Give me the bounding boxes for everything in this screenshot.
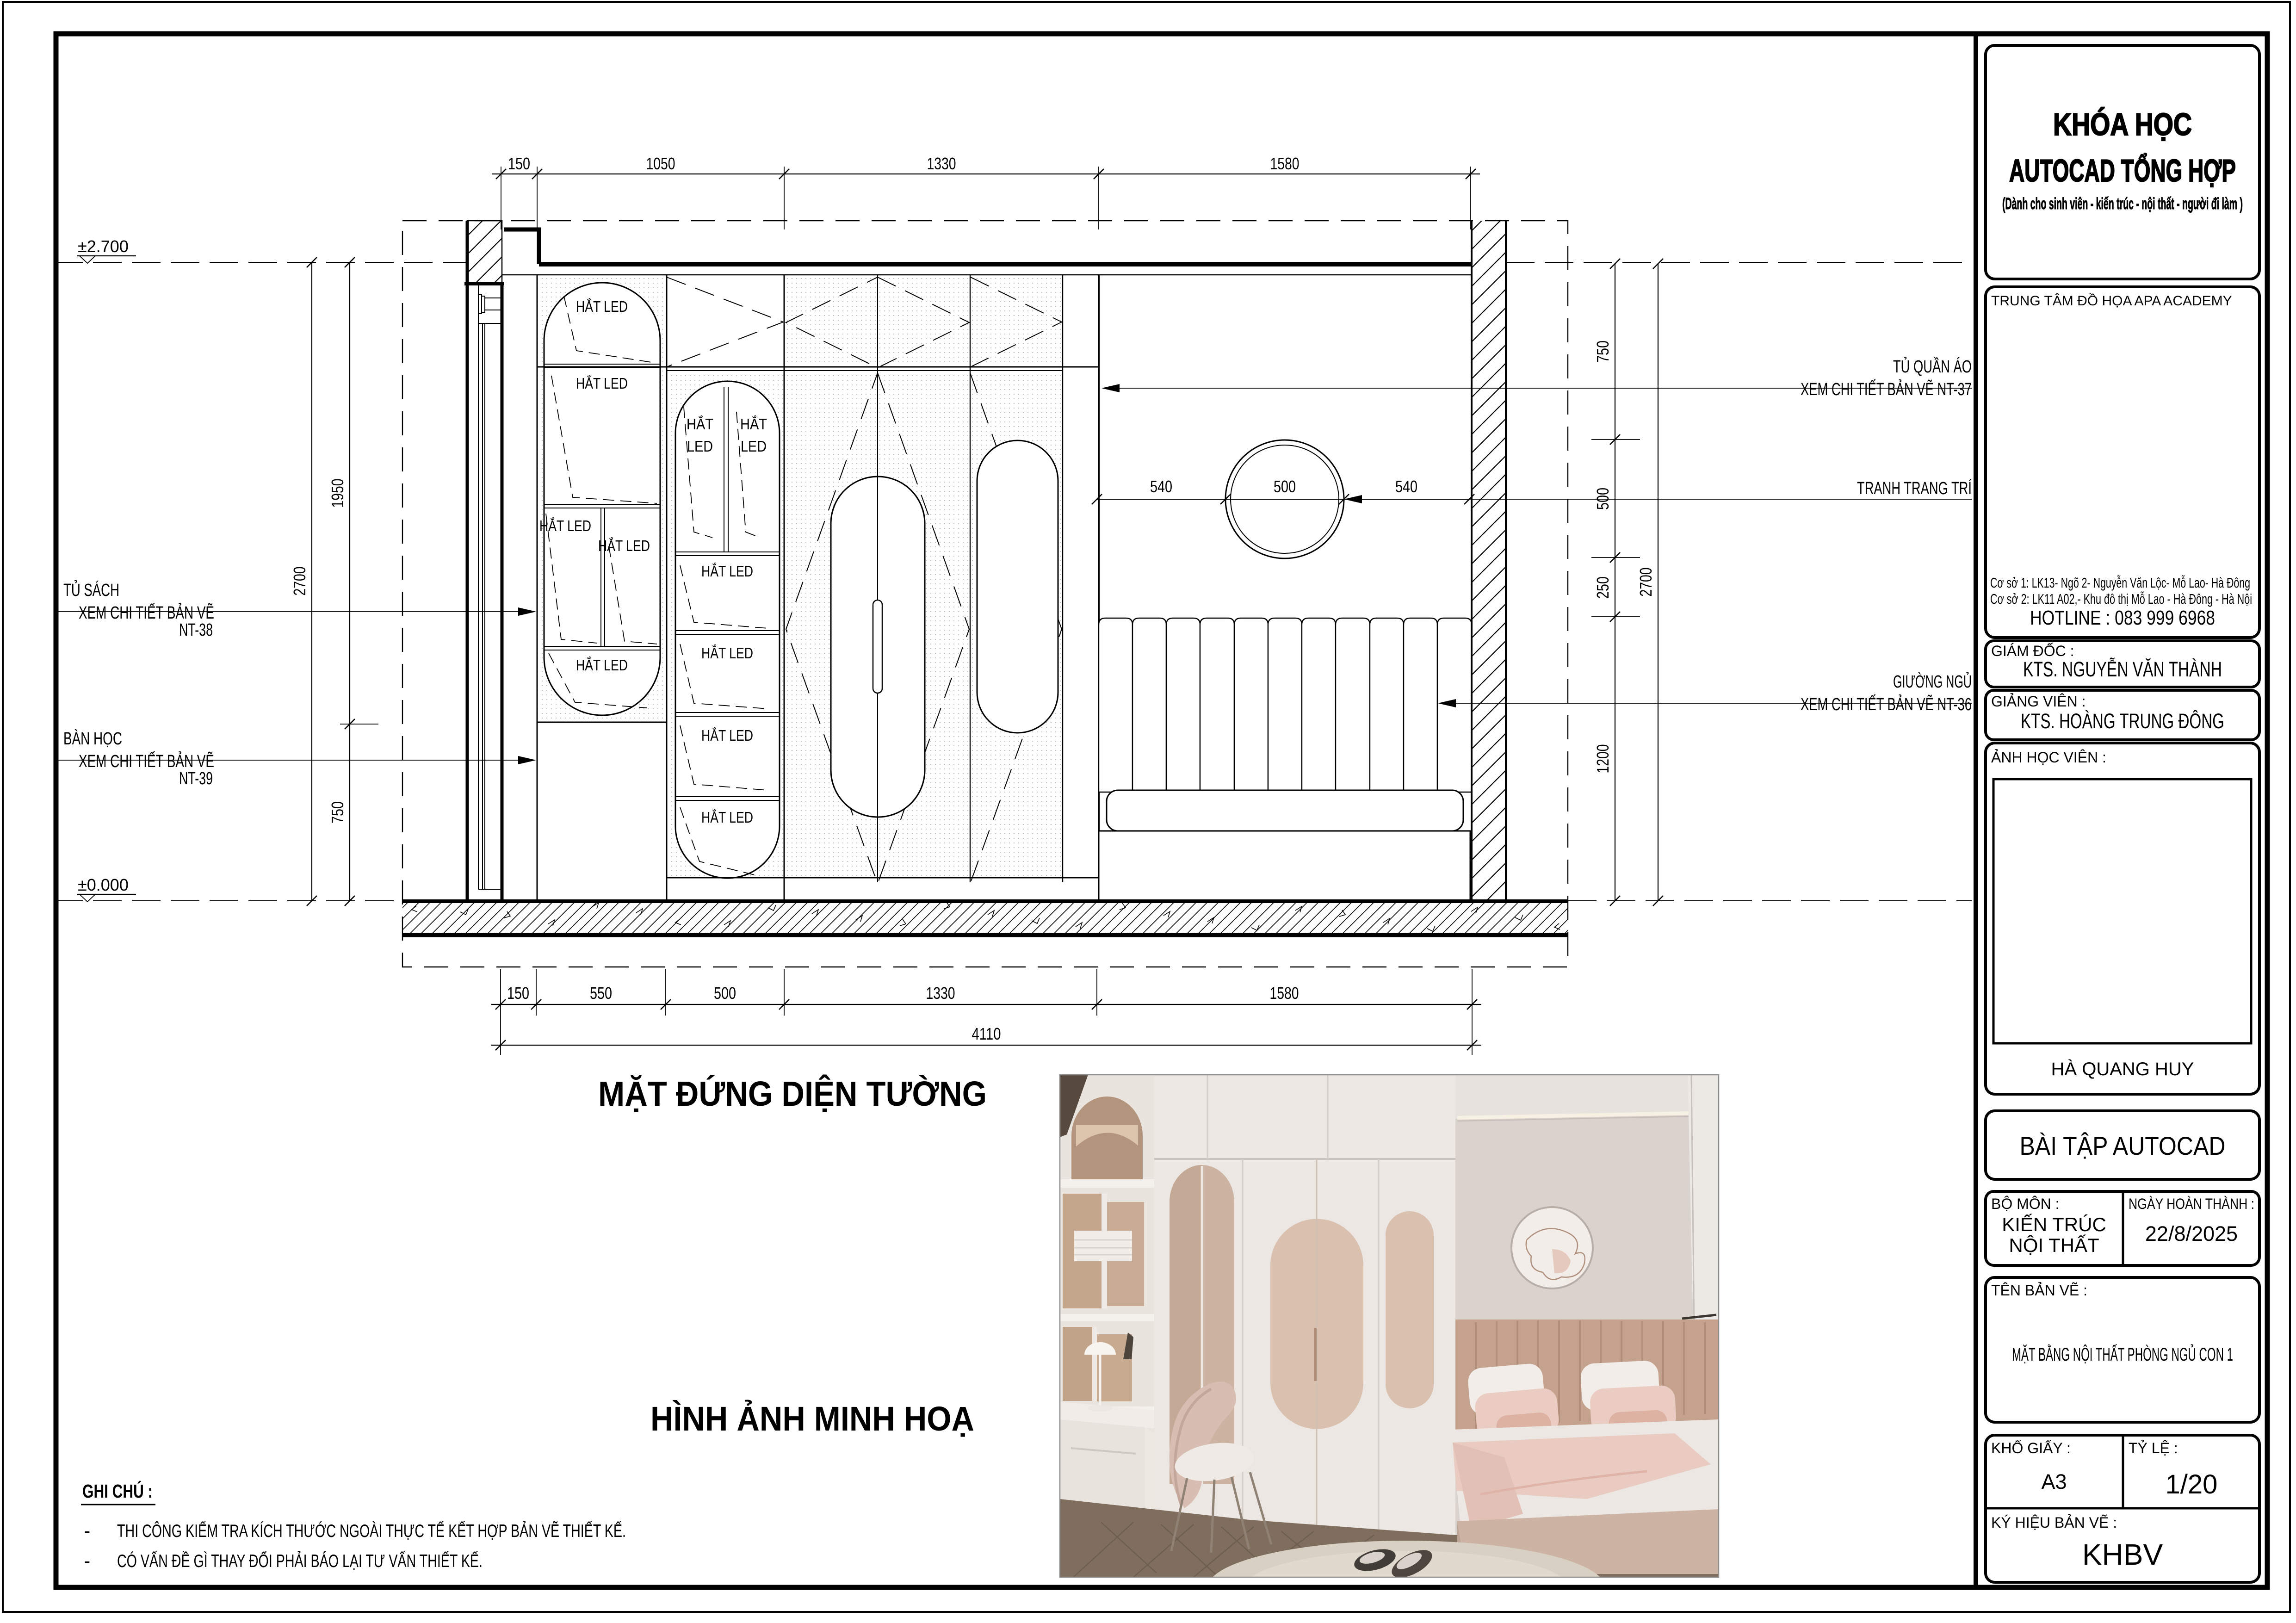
svg-text:TRANH TRANG TRÍ: TRANH TRANG TRÍ: [1857, 478, 1972, 498]
svg-text:HẮT LED: HẮT LED: [701, 809, 753, 826]
svg-text:-: -: [84, 1551, 90, 1571]
svg-text:CÓ VẤN ĐỀ GÌ THAY ĐỔI PHẢI BÁO: CÓ VẤN ĐỀ GÌ THAY ĐỔI PHẢI BÁO LẠI TƯ VẤ…: [117, 1550, 483, 1571]
svg-text:±2.700: ±2.700: [78, 237, 129, 256]
svg-text:HẮT LED: HẮT LED: [701, 563, 753, 580]
svg-text:NT-38: NT-38: [179, 620, 213, 640]
svg-text:500: 500: [714, 984, 736, 1003]
svg-text:ẢNH HỌC VIÊN :: ẢNH HỌC VIÊN :: [1991, 749, 2106, 766]
svg-text:550: 550: [590, 984, 612, 1003]
svg-text:1330: 1330: [927, 154, 956, 173]
svg-text:HẮT: HẮT: [687, 415, 713, 433]
svg-text:2700: 2700: [1636, 568, 1655, 597]
svg-text:250: 250: [1593, 576, 1612, 599]
svg-text:1580: 1580: [1270, 984, 1299, 1003]
svg-text:750: 750: [328, 801, 347, 824]
svg-text:HẮT LED: HẮT LED: [539, 517, 591, 534]
svg-text:HẮT LED: HẮT LED: [576, 298, 628, 315]
svg-text:XEM CHI TIẾT BẢN VẼ NT-37: XEM CHI TIẾT BẢN VẼ NT-37: [1801, 379, 1972, 399]
svg-text:NỘI THẤT: NỘI THẤT: [2009, 1234, 2099, 1256]
svg-text:XEM CHI TIẾT BẢN VẼ: XEM CHI TIẾT BẢN VẼ: [79, 602, 214, 623]
svg-text:KHỔ GIẤY :: KHỔ GIẤY :: [1991, 1440, 2071, 1456]
svg-text:KIẾN TRÚC: KIẾN TRÚC: [2002, 1214, 2106, 1235]
svg-text:HOTLINE : 083 999 6968: HOTLINE : 083 999 6968: [2030, 607, 2215, 629]
svg-text:HẮT LED: HẮT LED: [701, 727, 753, 744]
svg-text:AUTOCAD TỔNG HỢP: AUTOCAD TỔNG HỢP: [2009, 153, 2236, 188]
svg-text:GHI CHÚ :: GHI CHÚ :: [82, 1481, 153, 1502]
svg-text:GIẢNG VIÊN :: GIẢNG VIÊN :: [1991, 693, 2086, 710]
svg-text:HÌNH ẢNH MINH HOẠ: HÌNH ẢNH MINH HOẠ: [650, 1400, 974, 1438]
svg-text:THI CÔNG KIỂM TRA KÍCH THƯỚC N: THI CÔNG KIỂM TRA KÍCH THƯỚC NGOÀI THỰC …: [117, 1520, 626, 1541]
svg-text:HẮT LED: HẮT LED: [598, 537, 650, 554]
svg-text:GIƯỜNG NGỦ: GIƯỜNG NGỦ: [1893, 671, 1972, 692]
svg-text:KTS. HOÀNG TRUNG ĐÔNG: KTS. HOÀNG TRUNG ĐÔNG: [2021, 709, 2224, 733]
svg-text:2700: 2700: [290, 567, 309, 596]
svg-text:HÀ QUANG HUY: HÀ QUANG HUY: [2051, 1059, 2194, 1079]
svg-text:KÝ HIỆU BẢN VẼ :: KÝ HIỆU BẢN VẼ :: [1991, 1514, 2117, 1531]
svg-text:HẮT: HẮT: [740, 415, 767, 433]
svg-text:NT-39: NT-39: [179, 769, 213, 788]
svg-text:MẶT BẰNG NỘI THẤT PHÒNG NGỦ CO: MẶT BẰNG NỘI THẤT PHÒNG NGỦ CON 1: [2012, 1344, 2233, 1365]
svg-text:750: 750: [1593, 341, 1612, 363]
svg-text:150: 150: [508, 154, 530, 173]
svg-text:XEM CHI TIẾT BẢN VẼ NT-36: XEM CHI TIẾT BẢN VẼ NT-36: [1801, 694, 1972, 714]
svg-text:22/8/2025: 22/8/2025: [2145, 1222, 2238, 1245]
svg-text:HẮT LED: HẮT LED: [576, 657, 628, 674]
svg-text:KHBV: KHBV: [2082, 1538, 2163, 1571]
svg-text:GIÁM ĐỐC :: GIÁM ĐỐC :: [1991, 643, 2074, 659]
svg-text:TÊN BẢN VẼ :: TÊN BẢN VẼ :: [1991, 1282, 2087, 1299]
svg-text:1200: 1200: [1593, 744, 1612, 774]
svg-text:±0.000: ±0.000: [78, 875, 129, 894]
svg-text:TỦ SÁCH: TỦ SÁCH: [63, 580, 119, 600]
svg-text:1/20: 1/20: [2166, 1469, 2218, 1499]
svg-text:LED: LED: [687, 438, 713, 455]
svg-text:HẮT LED: HẮT LED: [701, 644, 753, 662]
svg-text:NGÀY HOÀN THÀNH :: NGÀY HOÀN THÀNH :: [2129, 1196, 2254, 1212]
svg-text:BỘ MÔN :: BỘ MÔN :: [1991, 1196, 2060, 1212]
svg-text:540: 540: [1150, 477, 1172, 496]
svg-text:1330: 1330: [926, 984, 955, 1003]
svg-text:KTS. NGUYỄN VĂN THÀNH: KTS. NGUYỄN VĂN THÀNH: [2023, 657, 2222, 681]
svg-text:Cơ sở 2: LK11 A02,- Khu đô thị: Cơ sở 2: LK11 A02,- Khu đô thị Mỗ Lao - …: [1990, 591, 2252, 607]
svg-text:150: 150: [507, 984, 529, 1003]
svg-text:A3: A3: [2041, 1470, 2067, 1493]
svg-text:MẶT ĐỨNG DIỆN TƯỜNG: MẶT ĐỨNG DIỆN TƯỜNG: [598, 1074, 987, 1113]
svg-text:1950: 1950: [328, 479, 347, 508]
svg-text:Cơ sở 1: LK13- Ngõ 2- Nguyễn V: Cơ sở 1: LK13- Ngõ 2- Nguyễn Văn Lộc- Mỗ…: [1990, 575, 2250, 591]
svg-text:500: 500: [1593, 488, 1612, 510]
svg-text:TRUNG TÂM ĐỒ HỌA APA ACADEMY: TRUNG TÂM ĐỒ HỌA APA ACADEMY: [1991, 293, 2232, 309]
svg-text:540: 540: [1395, 477, 1417, 496]
svg-text:4110: 4110: [972, 1024, 1001, 1043]
svg-text:HẮT LED: HẮT LED: [576, 375, 628, 392]
svg-text:XEM CHI TIẾT BẢN VẼ: XEM CHI TIẾT BẢN VẼ: [79, 751, 214, 771]
svg-text:1580: 1580: [1270, 154, 1300, 173]
svg-text:LED: LED: [741, 438, 767, 455]
svg-text:TỦ QUẦN ÁO: TỦ QUẦN ÁO: [1893, 356, 1972, 377]
svg-text:BÀN HỌC: BÀN HỌC: [63, 729, 122, 749]
svg-text:TỶ LỆ :: TỶ LỆ :: [2129, 1440, 2178, 1456]
svg-text:KHÓA HỌC: KHÓA HỌC: [2053, 107, 2192, 142]
svg-text:1050: 1050: [646, 154, 675, 173]
svg-text:500: 500: [1274, 477, 1296, 496]
svg-text:-: -: [84, 1521, 90, 1541]
svg-text:BÀI TẬP AUTOCAD: BÀI TẬP AUTOCAD: [2020, 1131, 2226, 1160]
svg-text:(Dành cho sinh viên - kiến tr: (Dành cho sinh viên - kiến trúc - nội th…: [2002, 195, 2243, 213]
